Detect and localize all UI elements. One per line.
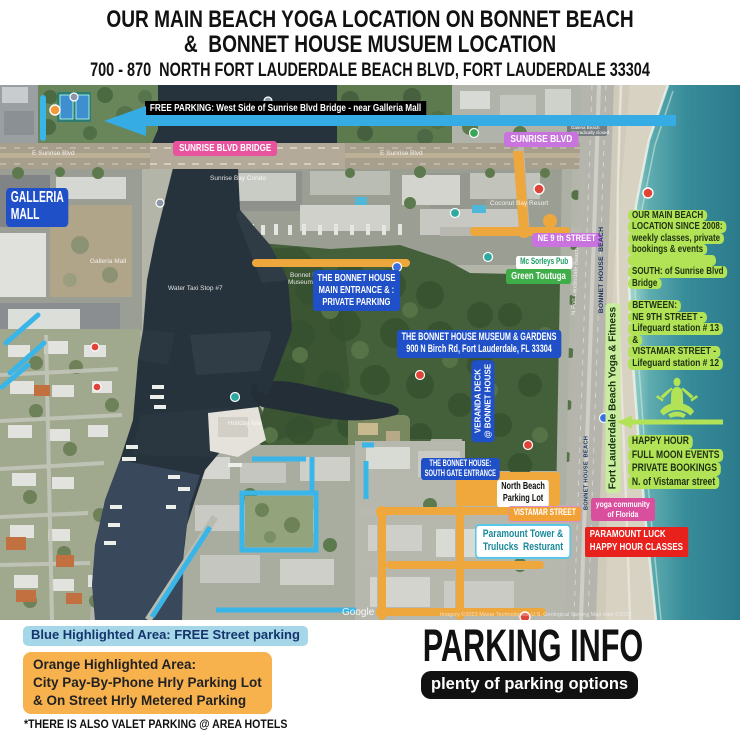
svg-text:Holiday Isle: Holiday Isle	[228, 420, 262, 427]
svg-text:E Sunrise Blvd: E Sunrise Blvd	[32, 150, 75, 157]
svg-text:Galleria Mall: Galleria Mall	[90, 258, 127, 265]
svg-text:Sunrise Bay Condo: Sunrise Bay Condo	[210, 175, 266, 182]
svg-text:Coconut Bay Resort: Coconut Bay Resort	[490, 200, 548, 207]
svg-text:Water Taxi Stop #7: Water Taxi Stop #7	[168, 285, 223, 292]
svg-text:E Sunrise Blvd: E Sunrise Blvd	[380, 150, 423, 157]
svg-text:Imagery ©2023 Maxar Technologi: Imagery ©2023 Maxar Technologies, U.S. G…	[440, 611, 631, 618]
svg-text:Google: Google	[342, 607, 375, 618]
